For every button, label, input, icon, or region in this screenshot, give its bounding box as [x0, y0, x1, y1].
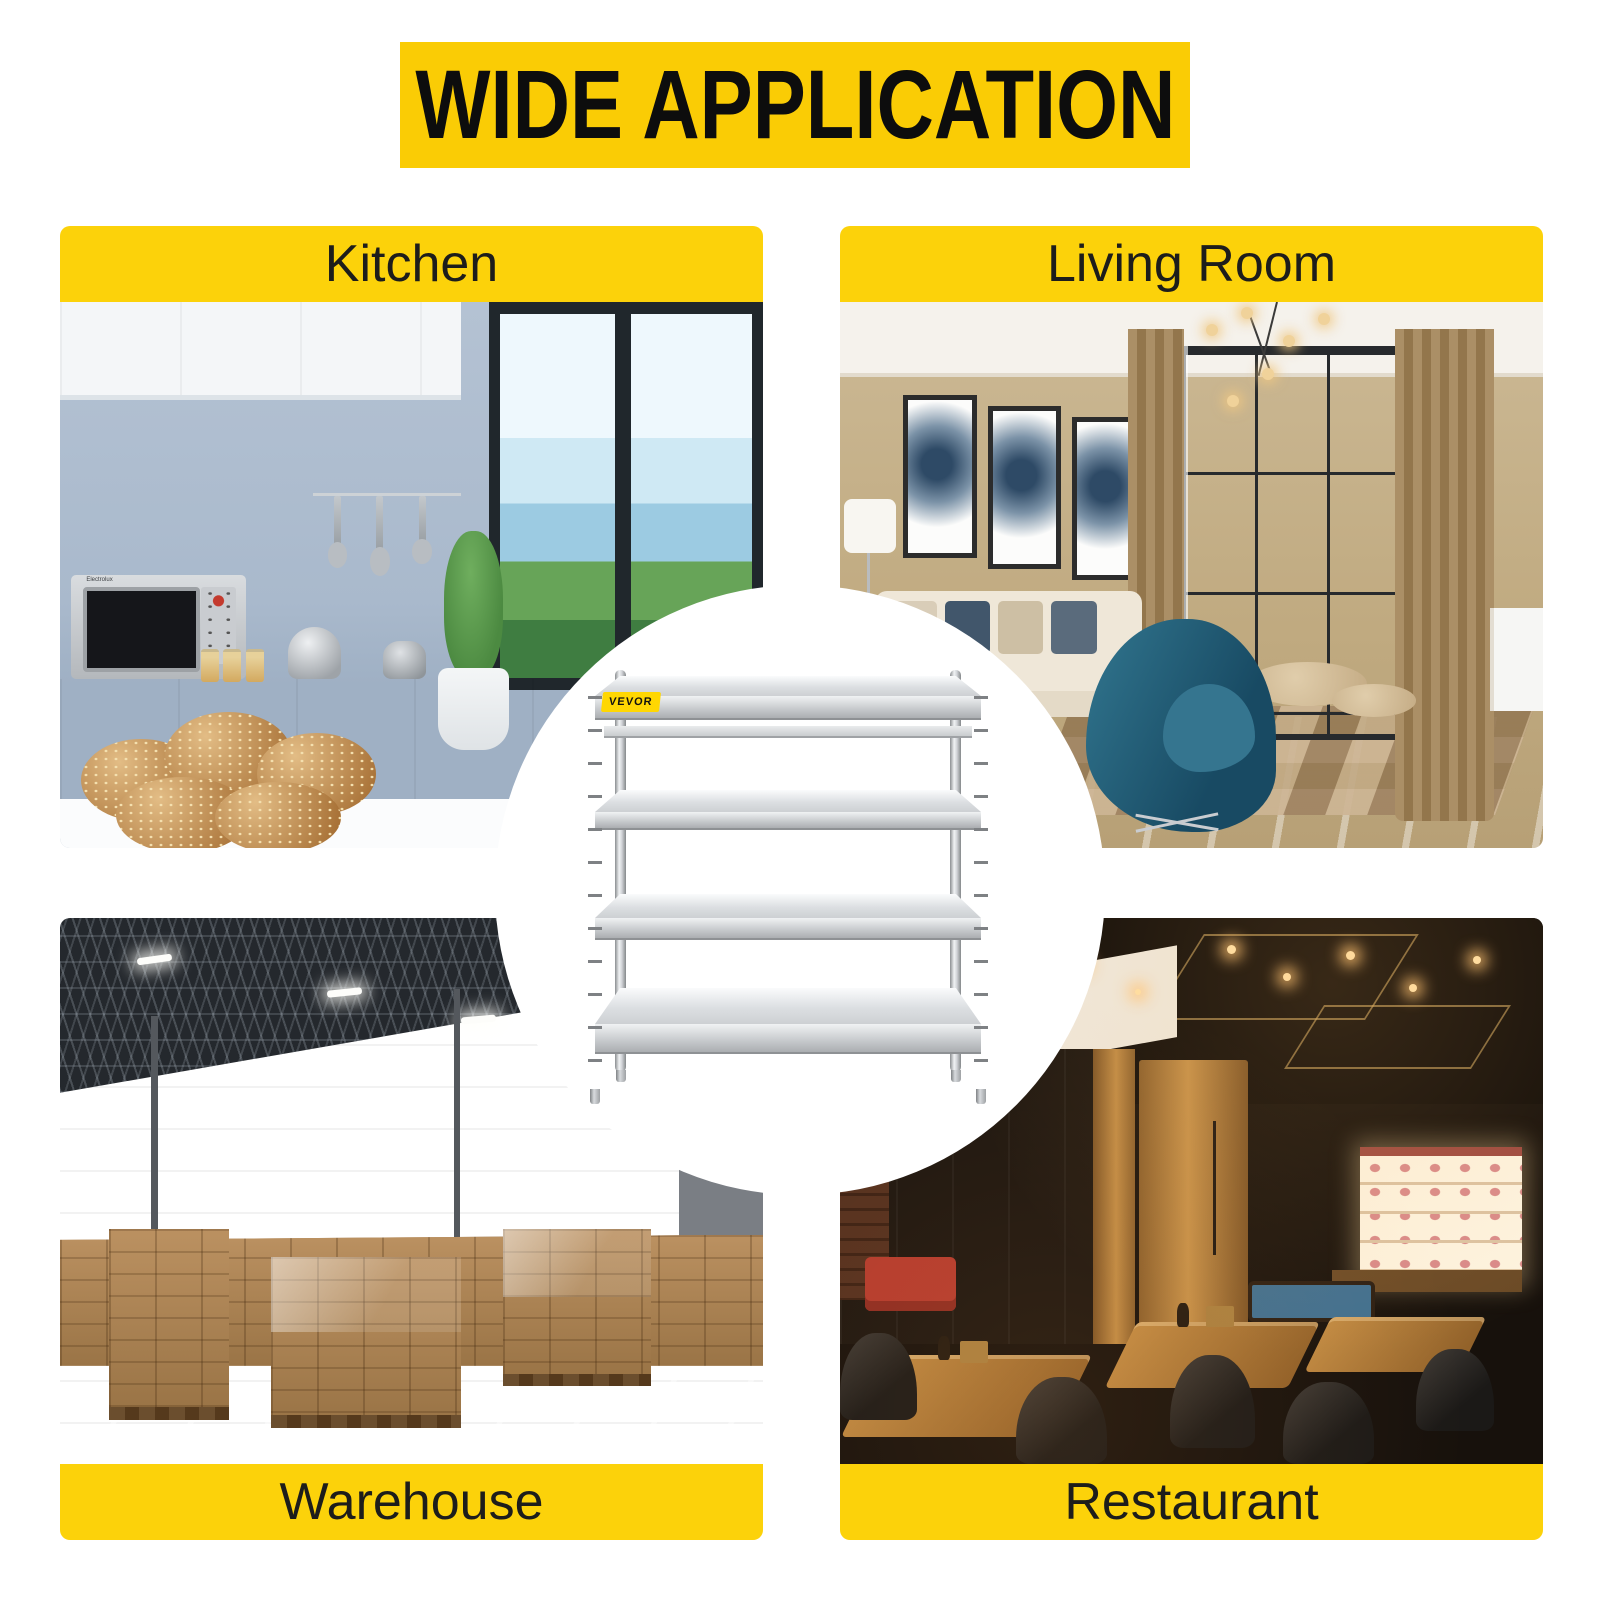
pot [383, 641, 425, 679]
chandelier-bulb [1262, 368, 1274, 380]
spotlight [1346, 951, 1355, 960]
shelf-front-foot [590, 1089, 600, 1104]
shelf-front-leg [588, 666, 602, 1090]
leather-chair [1416, 1349, 1493, 1431]
kitchen-upper-cabinets [60, 302, 461, 400]
curtain-right [1395, 329, 1493, 820]
wood-pillar [1093, 1049, 1135, 1344]
tv-cabinet [1490, 608, 1543, 712]
kitchen-label-band: Kitchen [60, 226, 763, 302]
kitchen-window-mullion [615, 302, 631, 690]
kettle [288, 627, 341, 679]
wall-art-frame [903, 395, 976, 558]
plastic-wrap [271, 1257, 461, 1332]
product-shelf-image: VEVOR [588, 666, 988, 1104]
spice-jar [201, 649, 219, 682]
shelf-front-foot [976, 1089, 986, 1104]
spotlight [1227, 945, 1236, 954]
sofa-pillow [1051, 601, 1096, 654]
pool-table [1248, 1281, 1376, 1322]
table-caddy [960, 1341, 988, 1363]
shelf-tier2-surface [595, 790, 981, 812]
warehouse-label-band: Warehouse [60, 1464, 763, 1540]
shelf-tier1-rail [604, 726, 972, 738]
door-handle [1213, 1121, 1216, 1255]
box-stack-wrapped [271, 1257, 461, 1421]
bread-roll [215, 782, 342, 848]
shelf-back-foot [616, 1070, 626, 1082]
shelf-tier2-edge [595, 812, 981, 830]
sofa-pillow [998, 601, 1043, 654]
microwave: Electrolux [71, 575, 247, 679]
meat-display-case [1360, 1147, 1522, 1282]
living-room-label: Living Room [1047, 234, 1336, 294]
shelf-tier3-surface [595, 894, 981, 918]
living-room-label-band: Living Room [840, 226, 1543, 302]
spice-jar [246, 649, 264, 682]
pepper-mill [938, 1336, 949, 1361]
product-infographic-page: { "banner": { "title": "WIDE APPLICATION… [0, 0, 1600, 1600]
shelf-front-leg [974, 666, 988, 1090]
shelf-tier4-surface [595, 988, 981, 1024]
wall-column [151, 1016, 157, 1256]
hanging-utensil [376, 496, 383, 551]
coffee-table [1332, 684, 1416, 717]
title-banner: WIDE APPLICATION [400, 42, 1190, 168]
chandelier-bulb [1227, 395, 1239, 407]
microwave-brand: Electrolux [86, 577, 112, 583]
plastic-wrap [503, 1229, 651, 1297]
warehouse-label: Warehouse [280, 1472, 544, 1532]
restaurant-label-band: Restaurant [840, 1464, 1543, 1540]
wall-art-frame [988, 406, 1061, 569]
leather-chair [840, 1333, 917, 1420]
shelf-tier4-edge [595, 1024, 981, 1054]
page-title: WIDE APPLICATION [415, 49, 1175, 161]
ceiling-light [460, 1015, 496, 1025]
brand-badge: VEVOR [601, 692, 661, 712]
hanging-utensil [419, 496, 426, 542]
red-bench [865, 1257, 956, 1312]
chandelier-bulb [1206, 324, 1218, 336]
hanging-utensil [334, 496, 341, 545]
pallet [503, 1374, 651, 1386]
wall-column [454, 989, 460, 1273]
pepper-mill [1177, 1303, 1188, 1328]
table-caddy [1206, 1306, 1234, 1328]
table-lamp-shade [844, 499, 897, 554]
cactus-plant [444, 531, 503, 678]
shelf-back-foot [951, 1070, 961, 1082]
chandelier-bulb [1318, 313, 1330, 325]
pallet [271, 1415, 461, 1428]
spotlight [1473, 956, 1481, 964]
chandelier-bulb [1283, 335, 1295, 347]
wood-door [1139, 1060, 1248, 1338]
restaurant-label: Restaurant [1064, 1472, 1318, 1532]
kitchen-label: Kitchen [325, 234, 498, 294]
spice-jar [223, 649, 241, 682]
microwave-door [83, 587, 200, 672]
leather-chair [1283, 1382, 1374, 1464]
box-stack-wrapped [503, 1229, 651, 1376]
shelf-tier3-edge [595, 918, 981, 940]
pallet [109, 1407, 229, 1420]
spotlight [1409, 984, 1417, 992]
spotlight [1283, 973, 1291, 981]
box-stack [109, 1229, 229, 1409]
